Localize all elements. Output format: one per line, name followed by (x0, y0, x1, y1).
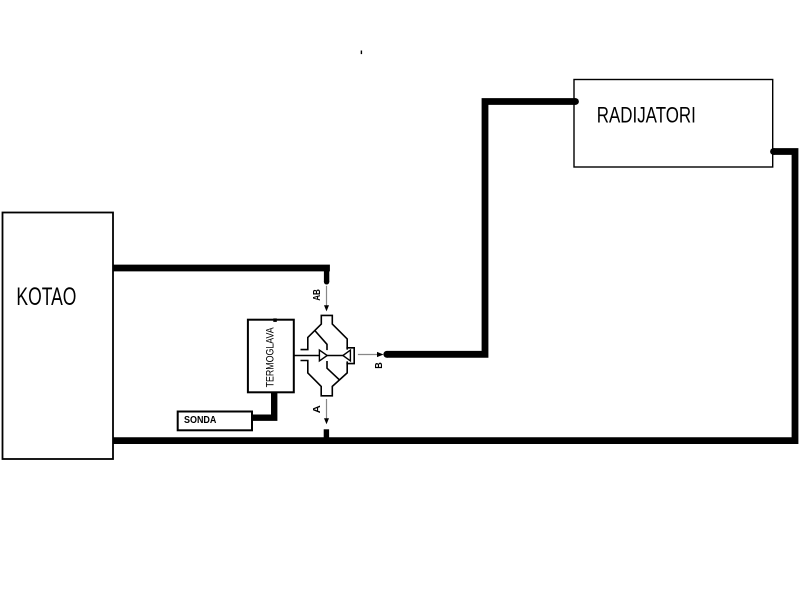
svg-text:B: B (373, 362, 385, 369)
svg-text:SONDA: SONDA (184, 415, 216, 426)
svg-text:KOTAO: KOTAO (16, 284, 76, 311)
svg-text:AB: AB (311, 289, 323, 301)
svg-text:A: A (311, 405, 323, 413)
svg-text:RADIJATORI: RADIJATORI (597, 103, 696, 128)
svg-text:TERMOGLAVA: TERMOGLAVA (265, 327, 277, 387)
